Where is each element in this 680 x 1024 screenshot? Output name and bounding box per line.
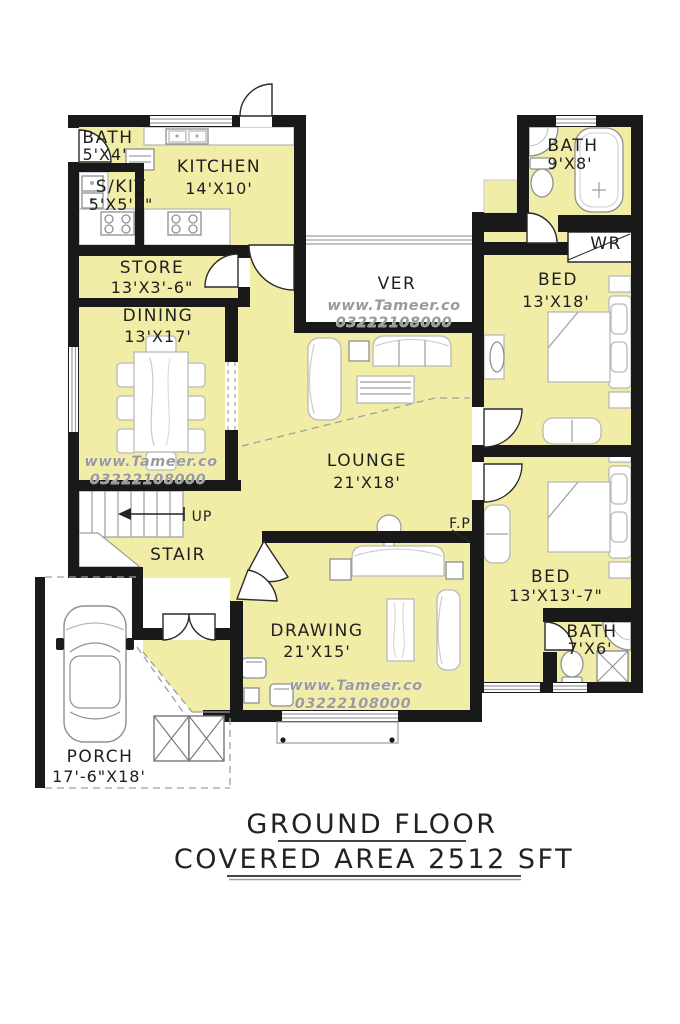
plan-title: GROUND FLOOR	[246, 809, 497, 840]
bed1-label: BED	[538, 270, 578, 290]
bath1-size: 5'X4'	[82, 145, 127, 164]
stair-up-label: UP	[192, 509, 213, 525]
car	[56, 606, 134, 742]
skit-label: S/KIT	[96, 177, 147, 197]
watermark-site: www.Tameer.co	[289, 678, 422, 694]
floor-plan-drawing: BATH 5'X4' S/KIT 5'X5'7" KITCHEN 14'X10'…	[0, 0, 680, 1024]
bath3-size: 7'X6'	[567, 639, 612, 658]
kitchen-label: KITCHEN	[177, 157, 261, 177]
porch-label: PORCH	[67, 747, 134, 767]
drawing-size: 21'X15'	[283, 642, 350, 661]
bed1-size: 13'X18'	[522, 292, 589, 311]
plan-subtitle: COVERED AREA 2512 SFT	[174, 844, 574, 875]
planter-icon	[154, 716, 224, 761]
kitchen-size: 14'X10'	[185, 179, 252, 198]
drawing-label: DRAWING	[270, 621, 363, 641]
floor-plan-page: BATH 5'X4' S/KIT 5'X5'7" KITCHEN 14'X10'…	[0, 0, 680, 1024]
porch-boundary-wall	[35, 577, 45, 788]
skit-size: 5'X5'7"	[89, 195, 154, 214]
dining-size: 13'X17'	[124, 327, 191, 346]
store-label: STORE	[120, 258, 185, 278]
lounge-label: LOUNGE	[327, 451, 407, 471]
fireplace-label: F.P	[449, 516, 471, 532]
bath2-size: 9'X8'	[547, 154, 592, 173]
bed2-size: 13'X13'-7"	[509, 586, 603, 605]
title-block: GROUND FLOOR COVERED AREA 2512 SFT	[174, 809, 574, 880]
front-step	[277, 722, 398, 743]
porch-size: 17'-6"X18'	[52, 767, 146, 786]
wr-label: WR	[590, 234, 622, 254]
dining-label: DINING	[123, 306, 194, 326]
watermark-phone: 03222108000	[336, 315, 452, 331]
watermark-phone: 03222108000	[295, 696, 411, 712]
bath2-label: BATH	[547, 136, 598, 156]
stair-label: STAIR	[150, 545, 206, 565]
store-size: 13'X3'-6"	[111, 278, 194, 297]
watermark-phone: 03222108000	[90, 472, 206, 488]
ver-label: VER	[378, 274, 417, 294]
watermark-site: www.Tameer.co	[84, 454, 217, 470]
lounge-size: 21'X18'	[333, 473, 400, 492]
kitchen-exterior-door-icon	[240, 84, 272, 116]
bed2-label: BED	[531, 567, 571, 587]
watermark-site: www.Tameer.co	[327, 298, 460, 314]
